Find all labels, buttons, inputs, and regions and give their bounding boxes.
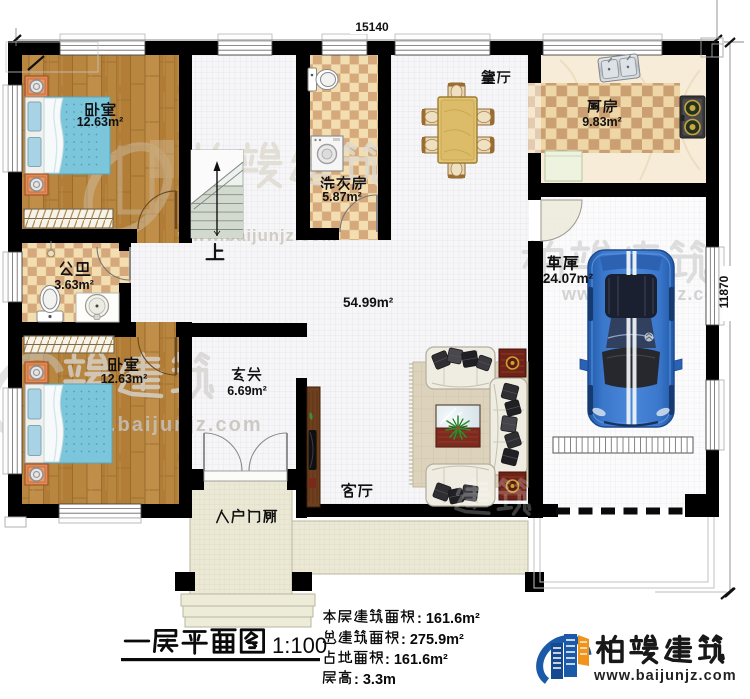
svg-text:www.baijunjz.com: www.baijunjz.com — [593, 668, 737, 684]
svg-text:5.87m²: 5.87m² — [322, 190, 362, 204]
svg-text:: 275.9m²: : 275.9m² — [401, 632, 464, 648]
svg-text:: 3.3m: : 3.3m — [354, 672, 396, 688]
svg-text:12.63m²: 12.63m² — [77, 115, 124, 129]
svg-text:1:100: 1:100 — [272, 633, 327, 658]
svg-text:3.63m²: 3.63m² — [54, 278, 94, 292]
svg-text:54.99m²: 54.99m² — [343, 295, 394, 310]
svg-text:12.63m²: 12.63m² — [101, 372, 148, 386]
svg-text:24.07m²: 24.07m² — [543, 271, 594, 286]
svg-text:: 161.6m²: : 161.6m² — [417, 611, 480, 627]
svg-text:: 161.6m²: : 161.6m² — [385, 652, 448, 668]
svg-text:6.69m²: 6.69m² — [227, 384, 267, 398]
svg-text:9.83m²: 9.83m² — [582, 115, 622, 129]
svg-text:11870: 11870 — [717, 275, 731, 308]
svg-text:15140: 15140 — [355, 20, 389, 34]
